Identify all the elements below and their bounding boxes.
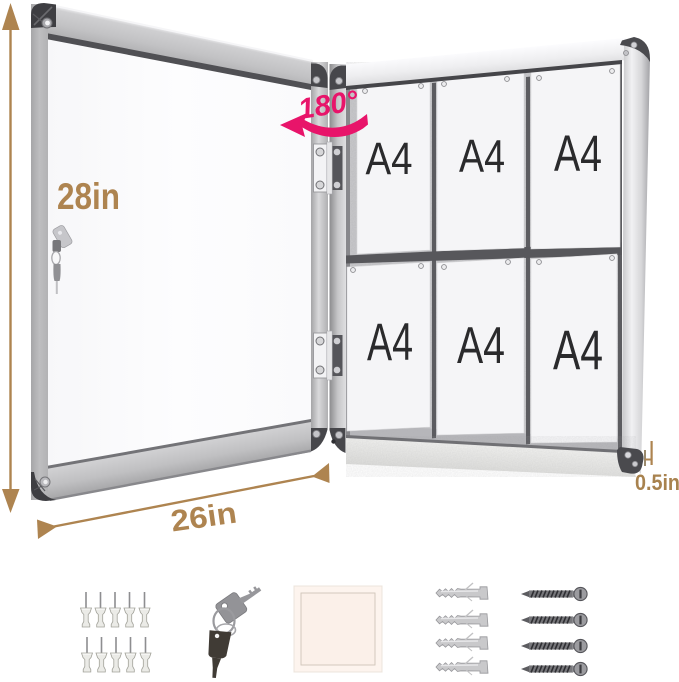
svg-text:A4: A4: [366, 133, 413, 184]
svg-text:A4: A4: [457, 317, 505, 375]
svg-text:0.5in: 0.5in: [635, 470, 679, 495]
svg-text:A4: A4: [367, 313, 413, 372]
svg-text:A4: A4: [553, 318, 603, 381]
svg-text:28in: 28in: [57, 176, 120, 217]
svg-text:A4: A4: [554, 125, 602, 182]
svg-text:A4: A4: [459, 130, 505, 182]
